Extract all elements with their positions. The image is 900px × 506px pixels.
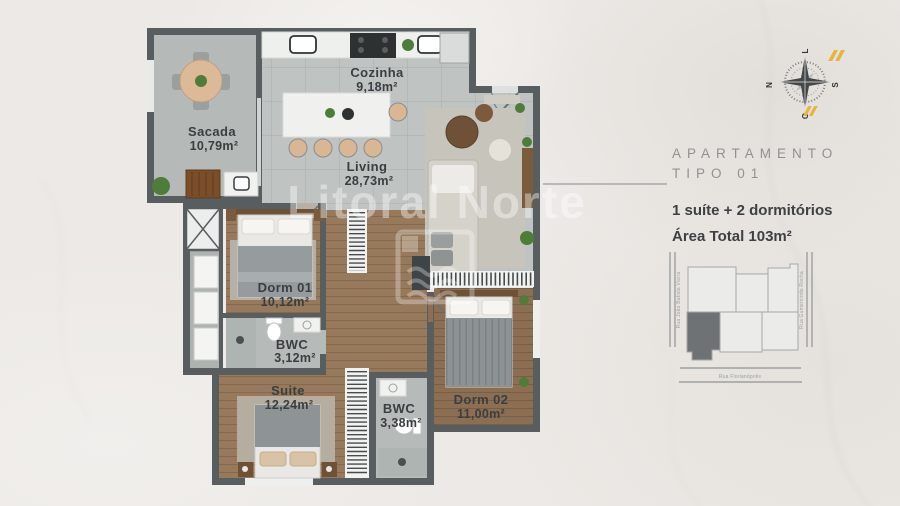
floor-plan-canvas: Sacada 10,79m² Cozinha 9,18m² Living 28,… [0, 0, 900, 506]
compass-east-label: L [801, 48, 810, 53]
apartment-title-line1: APARTAMENTO [672, 144, 887, 164]
shaft-icon [186, 208, 220, 250]
kitchen-sink-icon [290, 36, 316, 53]
building-footprint [687, 264, 798, 360]
room-area-suite: 12,24m² [265, 398, 314, 412]
street-bottom-label: Rua Florianópolis [719, 374, 762, 380]
apartment-features: 1 suíte + 2 dormitórios [672, 202, 887, 219]
kitchen-counter [262, 32, 469, 63]
room-label-bwc1: BWC [276, 337, 308, 352]
kitchen-sink2-icon [418, 36, 442, 53]
room-label-cozinha: Cozinha [350, 65, 404, 80]
room-label-dorm2: Dorm 02 [454, 392, 509, 407]
room-area-dorm1: 10,12m² [261, 295, 310, 309]
room-label-dorm1: Dorm 01 [258, 280, 313, 295]
kitchen-plant [402, 39, 414, 51]
corridor-panels [194, 256, 218, 360]
room-label-sacada: Sacada [188, 124, 236, 139]
room-area-cozinha: 9,18m² [356, 80, 397, 94]
room-area-sacada: 10,79m² [190, 139, 239, 153]
unit-bottom-mid [720, 312, 762, 352]
entry-bench [484, 95, 520, 104]
sacada-window [147, 60, 154, 112]
street-left-label: Rua João Batista Vieira [676, 272, 682, 329]
street-right-label: Rua Gumercindo Rocha [799, 271, 805, 329]
room-label-living: Living [347, 159, 388, 174]
compass-north-label: N [765, 82, 774, 88]
watermark-text: Litoral Norte [287, 176, 586, 228]
cooktop-icon [350, 33, 396, 58]
shower-icon [236, 336, 244, 344]
living-plant [520, 231, 534, 245]
sacada-sink-icon [234, 177, 249, 190]
apartment-title-line2: TIPO 01 [672, 164, 887, 184]
coffee-table [446, 116, 478, 148]
unit-top-left [688, 267, 736, 312]
bwc1-vanity [294, 318, 320, 332]
shower-icon [398, 458, 406, 466]
info-panel: APARTAMENTO TIPO 01 1 suíte + 2 dormitór… [672, 144, 887, 245]
entry-door-opening [492, 86, 518, 93]
site-key-map: Rua João Batista Vieira Rua Gumercindo R… [670, 252, 812, 382]
side-table [475, 104, 493, 122]
dorm2-window [533, 300, 540, 358]
room-area-dorm2: 11,00m² [457, 407, 505, 421]
apartment-brochure-page: Sacada 10,79m² Cozinha 9,18m² Living 28,… [0, 0, 900, 506]
pouf [489, 139, 511, 161]
room-label-bwc2: BWC [383, 401, 415, 416]
highlighted-unit [687, 312, 720, 360]
unit-bottom-right [762, 312, 798, 350]
fridge-icon [440, 33, 469, 63]
apartment-total-area: Área Total 103m² [672, 228, 887, 245]
floor-plan: Sacada 10,79m² Cozinha 9,18m² Living 28,… [147, 28, 540, 485]
unit-top-mid [736, 274, 768, 312]
room-area-bwc2: 3,38m² [380, 416, 421, 430]
room-label-suite: Suite [271, 383, 305, 398]
bwc1-door-opening [320, 330, 326, 354]
room-area-bwc1: 3,12m² [274, 351, 315, 365]
compass-rose-icon: N S L O [765, 48, 845, 119]
compass-south-label: S [831, 82, 840, 88]
unit-top-right [768, 264, 798, 312]
bwc2-vanity [380, 380, 406, 396]
suite-window [245, 478, 313, 485]
